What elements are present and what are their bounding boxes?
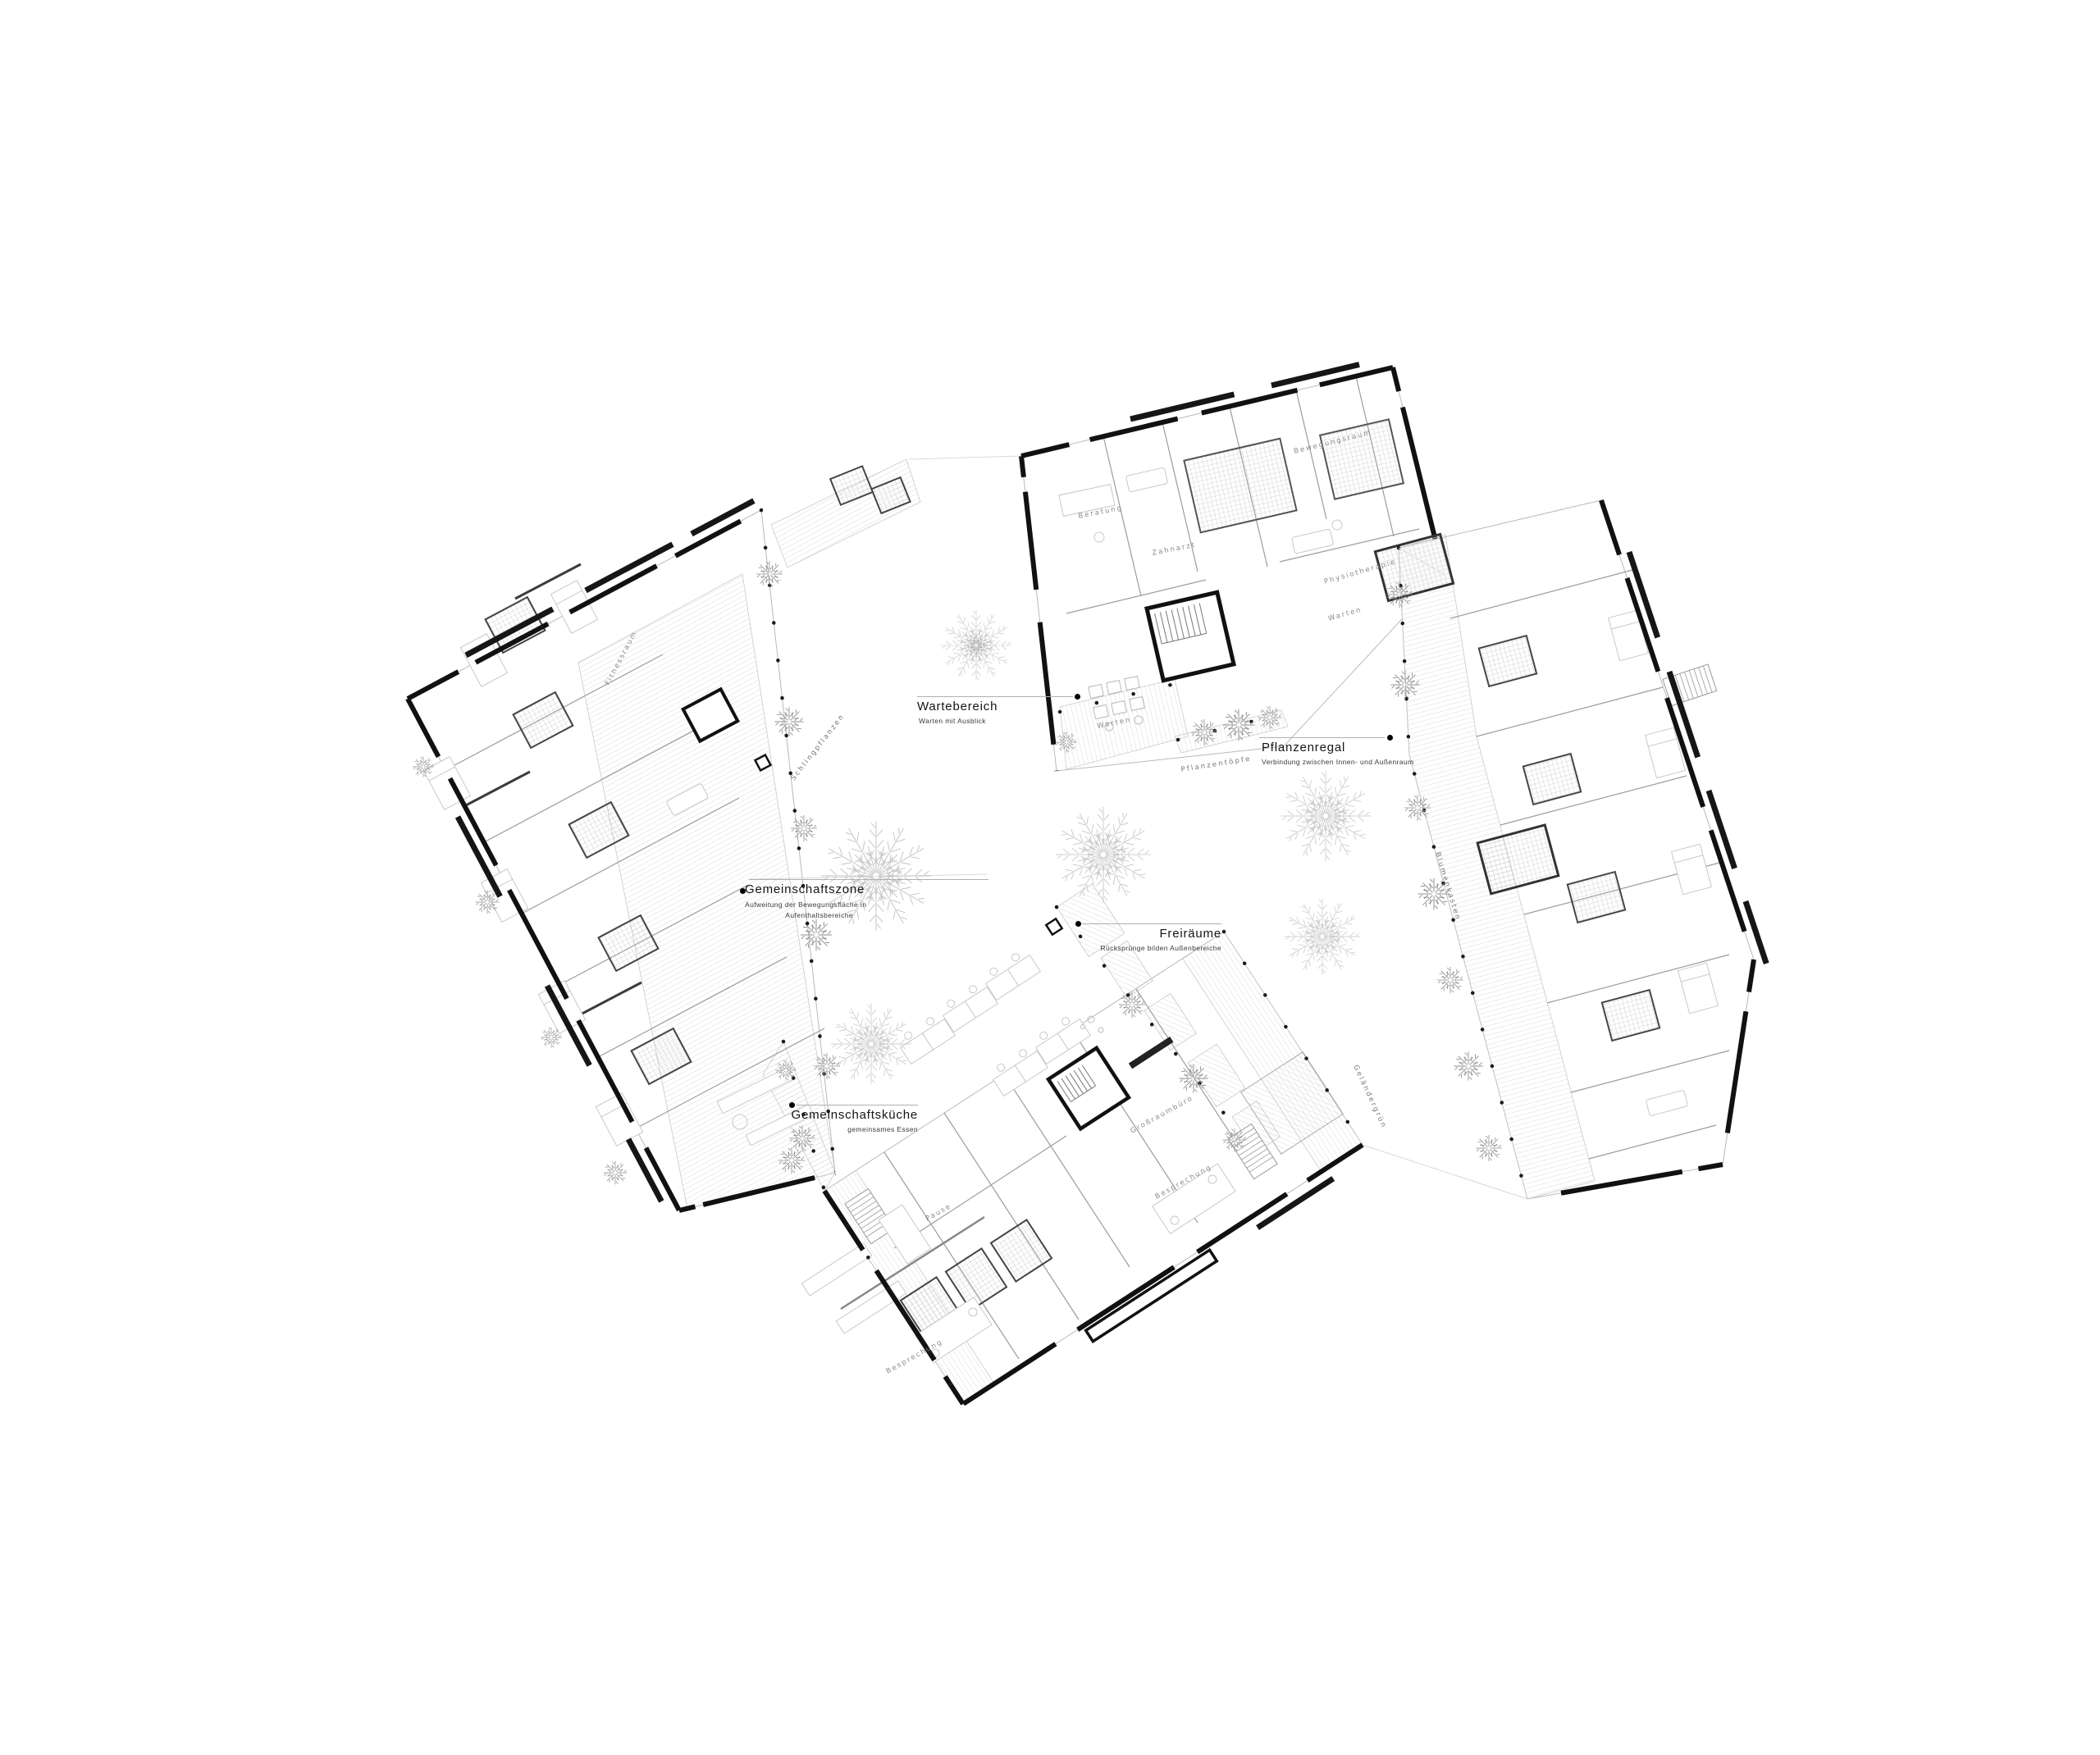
callout-title: Freiräume [1075, 927, 1221, 941]
tree [1281, 771, 1371, 861]
leader-dot [1075, 921, 1081, 927]
wing-bottom [801, 884, 1363, 1406]
planter-box [1046, 919, 1061, 934]
leader-line [749, 879, 988, 880]
leader-line [1082, 923, 1221, 924]
callout-subtitle-line1: Aufweitung der Bewegungsfläche in [745, 900, 853, 910]
callout-title: Gemeinschaftsküche [789, 1108, 918, 1122]
callout-subtitle: Rücksprünge bilden Außenbereiche [1075, 943, 1221, 954]
leader-dot [1387, 735, 1393, 741]
tree [1285, 899, 1361, 975]
wing-left [408, 459, 920, 1210]
wing-right [1375, 500, 1769, 1199]
callout-title: Pflanzenregal [1262, 741, 1345, 754]
callout-subtitle: gemeinsames Essen [789, 1124, 918, 1135]
callout-subtitle-line2: Aufenthaltsbereiche [745, 910, 853, 921]
floor-plan-page: Fitnessraum Schlingpflanzen Pflanzentöpf… [0, 0, 2100, 1755]
leader-dot [789, 1102, 795, 1108]
callout-title: Gemeinschaftszone [745, 882, 865, 896]
callout-subtitle: Verbindung zwischen Innen- und Außenraum [1262, 757, 1414, 768]
label-gelaendergruen: Geländergrün [1351, 1064, 1388, 1130]
leader-line [1259, 737, 1385, 738]
stair-core-top-wing [1147, 592, 1234, 680]
tree [1056, 807, 1151, 902]
leader-line [797, 1105, 918, 1105]
floor-plan-drawing: Fitnessraum Schlingpflanzen Pflanzentöpf… [0, 0, 2100, 1755]
callout-subtitle: Warten mit Ausblick [919, 716, 986, 727]
tree [941, 610, 1012, 681]
tree [831, 1004, 912, 1085]
label-schlingpflanzen: Schlingpflanzen [789, 713, 847, 782]
label-pflanzentoepfe: Pflanzentöpfe [1180, 754, 1252, 773]
callout-title: Wartebereich [917, 700, 997, 713]
leader-line [917, 696, 1073, 697]
leader-dot [1075, 694, 1080, 700]
